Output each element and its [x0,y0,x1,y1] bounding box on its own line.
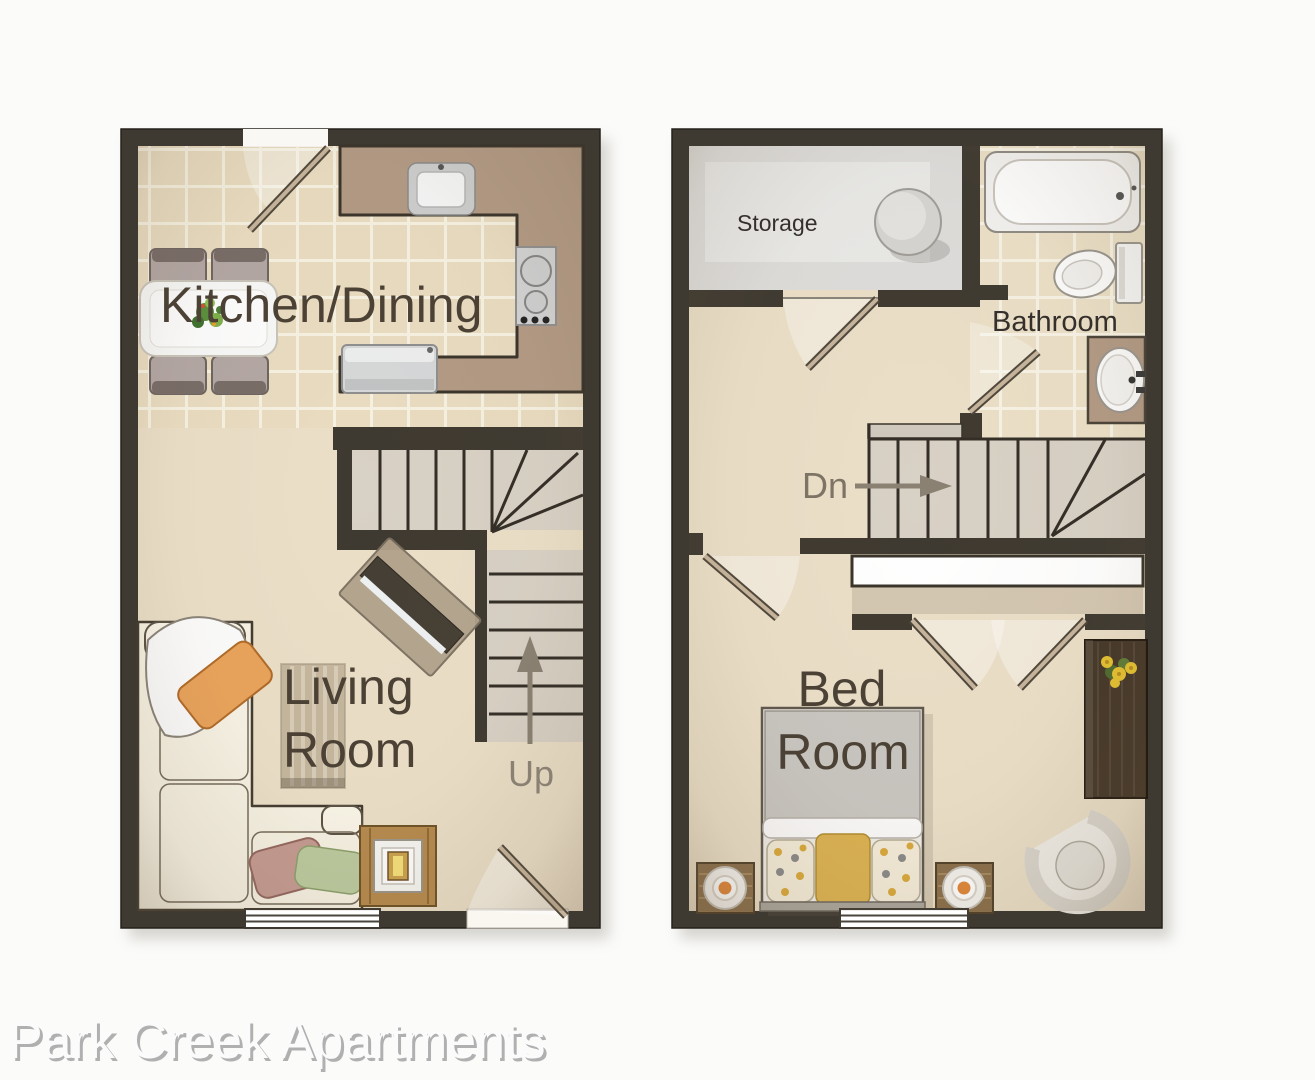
bed-room-label-line2: Room [776,724,909,780]
bathroom-label: Bathroom [992,306,1118,338]
storage-label: Storage [737,210,818,236]
footer-title-text: Park Creek Apartments [8,1012,546,1070]
footer-title: Park Creek Apartments Park Creek Apartme… [8,1012,549,1073]
dn-label: Dn [802,465,848,506]
living-room-label-line2: Room [283,722,416,778]
first-floor-vignette [138,146,583,911]
living-room-window [245,909,380,928]
entry-door-opening [243,129,328,147]
up-label: Up [508,753,554,794]
second-floor-vignette [689,146,1145,911]
floor-plan-page: Kitchen/Dining Living Room Up [0,0,1315,1080]
first-floor-plan: Kitchen/Dining Living Room Up [121,129,609,939]
living-room-label-line1: Living [283,659,414,715]
kitchen-dining-label: Kitchen/Dining [160,277,482,333]
second-floor-plan: Storage Bathroom Dn Bed Room [672,129,1171,939]
bedroom-window [840,909,968,928]
bed-room-label-line1: Bed [798,661,887,717]
floor-plan-canvas: Kitchen/Dining Living Room Up [0,0,1315,1080]
